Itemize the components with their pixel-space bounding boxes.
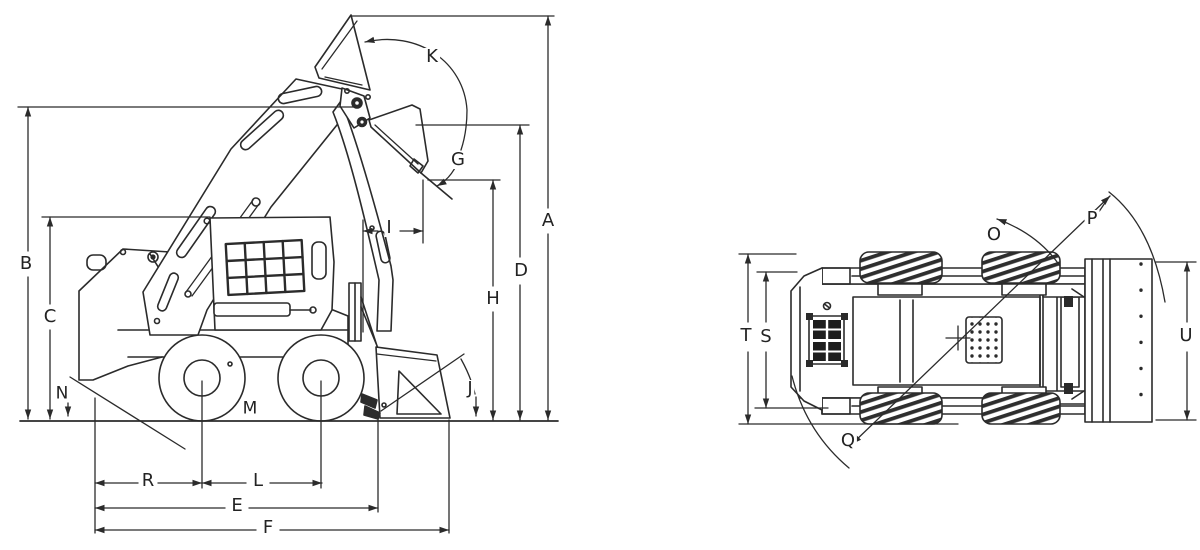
dim-label-s: S — [758, 328, 773, 346]
dim-label-b: B — [18, 255, 34, 273]
top-view — [791, 252, 1152, 424]
perforated-plate — [966, 317, 1002, 363]
dim-label-e: E — [229, 497, 244, 515]
dim-label-n: N — [54, 386, 71, 403]
front-linkage — [349, 283, 380, 353]
dim-label-u: U — [1177, 327, 1194, 345]
dim-label-a: A — [540, 212, 556, 230]
dim-label-d: D — [512, 262, 530, 280]
dim-label-g: G — [449, 151, 467, 169]
bucket-raised-upper — [315, 15, 370, 90]
side-view — [79, 15, 452, 421]
dim-label-r: R — [140, 472, 157, 490]
dim-label-h: H — [484, 290, 502, 308]
bucket-ground — [361, 347, 450, 419]
dim-label-q: Q — [839, 432, 857, 450]
dim-label-f: F — [261, 519, 275, 537]
dimension-diagram: A B C D E F G H I J K L M N R O P Q S T … — [0, 0, 1200, 550]
dim-label-m: M — [241, 401, 260, 418]
dim-label-p: P — [1085, 210, 1100, 228]
loader-dimension-drawing — [0, 0, 1200, 550]
bucket-top-view — [1085, 259, 1152, 422]
dim-label-i: I — [384, 219, 393, 237]
dim-label-o: O — [985, 226, 1003, 244]
dim-label-j: J — [465, 380, 474, 398]
dim-label-t: T — [739, 327, 754, 345]
dim-label-c: C — [42, 308, 59, 326]
dim-label-l: L — [251, 472, 265, 490]
dim-label-k: K — [424, 48, 440, 66]
